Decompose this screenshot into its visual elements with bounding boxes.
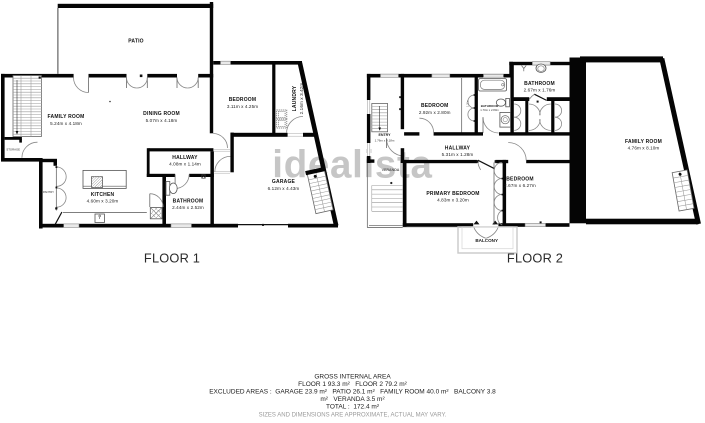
svg-text:4.60m x 3.20m: 4.60m x 3.20m	[87, 199, 119, 204]
svg-text:BATHROOM: BATHROOM	[524, 81, 555, 87]
svg-text:LAUNDRY: LAUNDRY	[292, 85, 298, 111]
svg-text:2.92m x 2.80m: 2.92m x 2.80m	[419, 110, 451, 115]
svg-text:SIZES AND DIMENSIONS ARE APPRO: SIZES AND DIMENSIONS ARE APPROXIMATE, AC…	[259, 413, 447, 419]
svg-text:HALLWAY: HALLWAY	[172, 155, 198, 161]
svg-text:2.44m x 2.52m: 2.44m x 2.52m	[172, 205, 204, 210]
svg-text:FLOOR 1 93.3 m² FLOOR 2 79.2: FLOOR 1 93.3 m² FLOOR 2 79.2 m²	[298, 381, 408, 388]
svg-text:BEDROOM: BEDROOM	[229, 97, 257, 103]
svg-text:FAMILY ROOM: FAMILY ROOM	[625, 139, 662, 145]
svg-text:BEDROOM: BEDROOM	[506, 176, 534, 182]
svg-text:BALCONY: BALCONY	[475, 238, 498, 243]
svg-text:5.31m x 1.28m: 5.31m x 1.28m	[442, 152, 474, 157]
svg-text:2.67m x 6.27m: 2.67m x 6.27m	[504, 183, 536, 188]
svg-text:PANTRY: PANTRY	[43, 190, 54, 194]
svg-text:ENTRY: ENTRY	[378, 133, 391, 137]
svg-text:4.76m x 8.10m: 4.76m x 8.10m	[628, 146, 660, 151]
svg-text:GARAGE: GARAGE	[272, 179, 296, 185]
svg-text:EXCLUDED AREAS : GARAGE 23.9: EXCLUDED AREAS : GARAGE 23.9 m² PATIO 26…	[209, 389, 496, 396]
svg-text:KITCHEN: KITCHEN	[91, 192, 115, 198]
svg-text:idealista: idealista	[272, 144, 432, 187]
svg-text:BATHROOM: BATHROOM	[173, 198, 204, 204]
svg-text:5.24m x 4.18m: 5.24m x 4.18m	[50, 121, 82, 126]
svg-text:PATIO: PATIO	[128, 39, 144, 45]
svg-text:GROSS INTERNAL AREA: GROSS INTERNAL AREA	[314, 374, 391, 381]
svg-text:1.30m: 1.30m	[467, 100, 470, 107]
svg-text:6.12m x 4.43m: 6.12m x 4.43m	[268, 186, 300, 191]
svg-text:1.76m x 4.18m: 1.76m x 4.18m	[375, 139, 395, 143]
svg-text:FLOOR 2: FLOOR 2	[507, 251, 563, 266]
svg-text:PRIMARY BEDROOM: PRIMARY BEDROOM	[426, 191, 479, 197]
svg-text:3.11m x 4.25m: 3.11m x 4.25m	[227, 104, 258, 109]
svg-text:1.70m x 2.80m: 1.70m x 2.80m	[480, 108, 499, 112]
svg-text:m² VERANDA 3.5 m²: m² VERANDA 3.5 m²	[320, 396, 385, 403]
svg-text:DINING ROOM: DINING ROOM	[143, 111, 180, 117]
svg-text:STORAGE: STORAGE	[6, 148, 20, 152]
svg-text:4.83m x 3.20m: 4.83m x 3.20m	[437, 198, 469, 203]
svg-text:FAMILY ROOM: FAMILY ROOM	[48, 114, 85, 120]
svg-text:HALLWAY: HALLWAY	[445, 145, 471, 151]
svg-text:FLOOR 1: FLOOR 1	[144, 251, 200, 266]
svg-text:VERANDA: VERANDA	[382, 168, 400, 172]
svg-text:BEDROOM: BEDROOM	[421, 103, 449, 109]
svg-text:2.67m x 1.76m: 2.67m x 1.76m	[524, 87, 556, 92]
svg-text:5.07m x 4.18m: 5.07m x 4.18m	[146, 118, 178, 123]
svg-text:4.08m x 1.14m: 4.08m x 1.14m	[169, 161, 201, 166]
svg-text:TOTAL : 172.4 m²: TOTAL : 172.4 m²	[326, 404, 380, 411]
